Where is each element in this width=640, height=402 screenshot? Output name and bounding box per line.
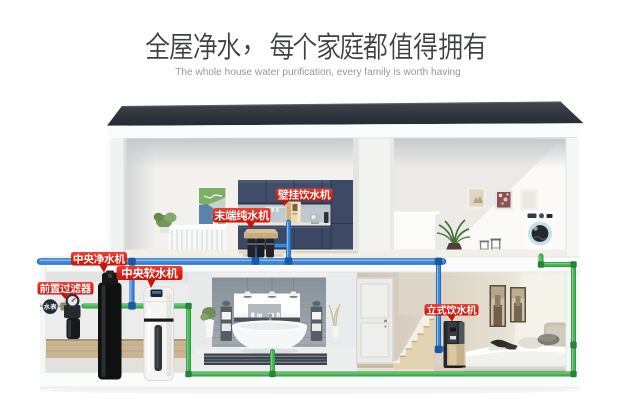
svg-text:The whole house water purifica: The whole house water purification, ever… [175, 67, 461, 78]
